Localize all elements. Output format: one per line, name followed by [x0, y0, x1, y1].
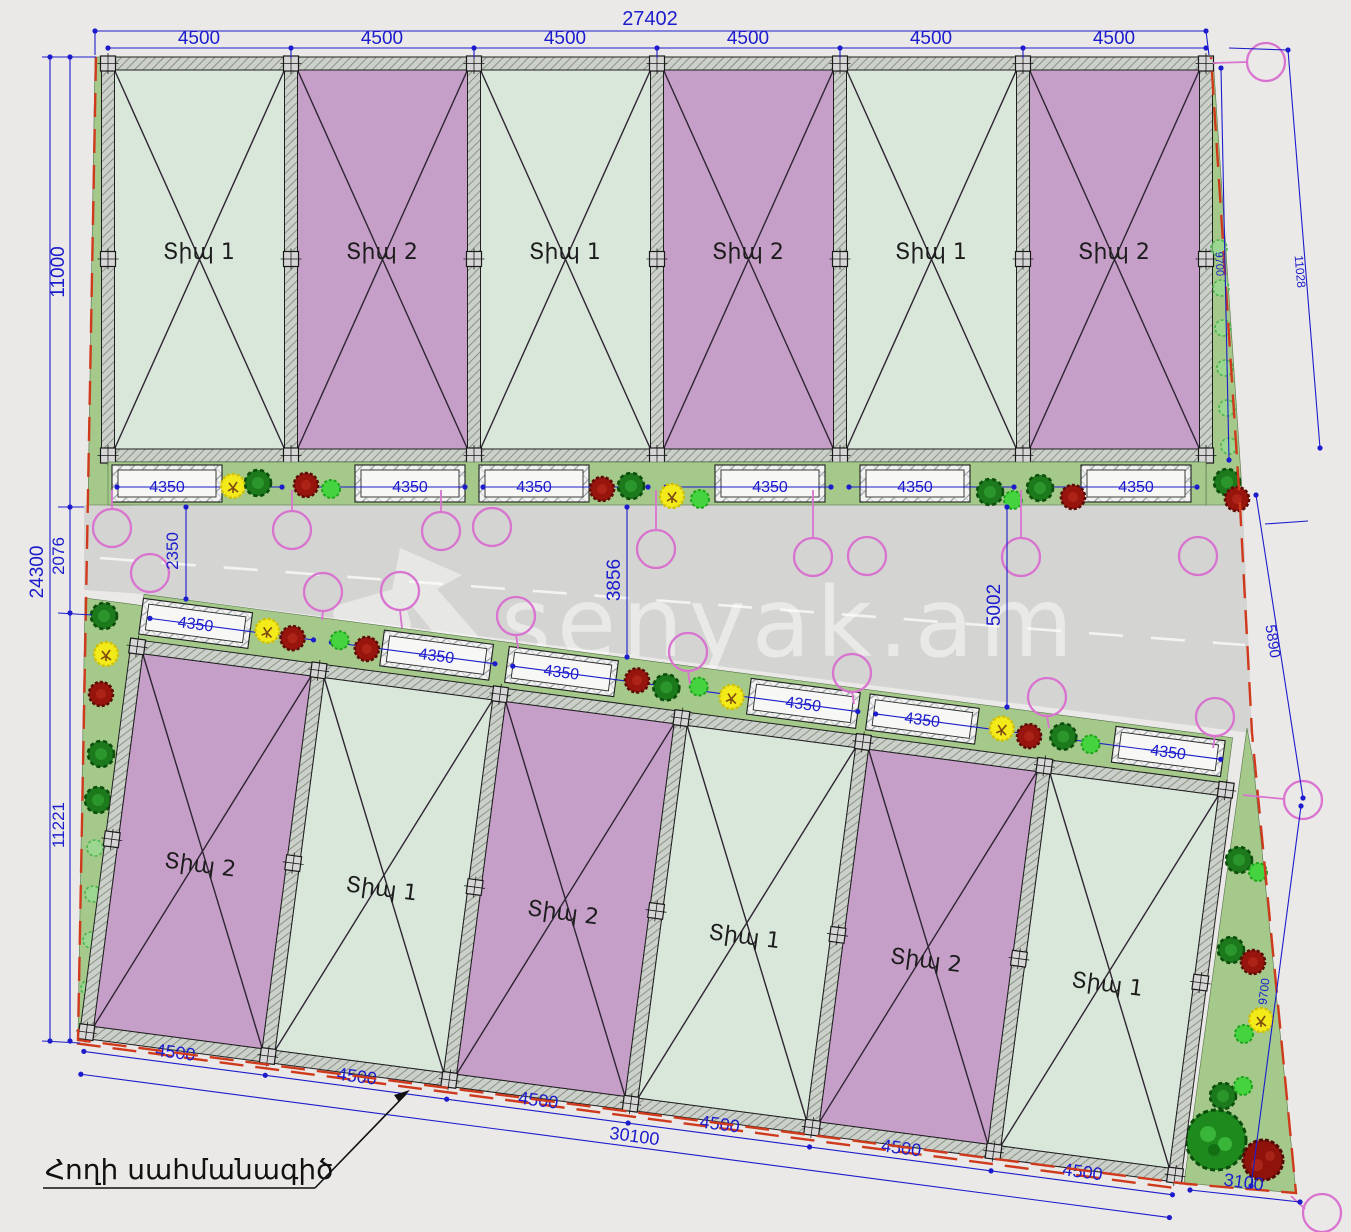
dimension-label: 24300 [27, 546, 48, 599]
plot: Տիպ 1 [481, 70, 651, 449]
dimension-label: 5002 [984, 584, 1005, 626]
dimension-label: 2350 [163, 532, 182, 570]
plot-label: Տիպ 2 [1078, 240, 1150, 265]
tree-icon [1061, 485, 1085, 509]
dimension-label: 4500 [544, 28, 586, 49]
dimension-label: 4500 [910, 28, 952, 49]
parking-dimension-label: 4350 [752, 479, 788, 496]
flower-icon [221, 474, 245, 498]
flower-icon [660, 484, 684, 508]
dimension-label: 4500 [178, 28, 220, 49]
plot: Տիպ 1 [847, 70, 1017, 449]
dimension-label: 11028 [1292, 255, 1309, 289]
dimension-label: 4500 [727, 28, 769, 49]
dimension-label: 2076 [49, 537, 68, 575]
tree-icon [691, 490, 709, 508]
dimension-label: 11000 [48, 246, 69, 297]
dimension-label: 4500 [361, 28, 403, 49]
dimension-label: 27402 [622, 8, 678, 30]
plot-label: Տիպ 1 [529, 240, 601, 265]
parking-dimension-label: 4350 [1118, 479, 1154, 496]
dimension-label: 11221 [49, 802, 68, 848]
top-plot-row: Տիպ 1 Տիպ 2 Տիպ 1 Տիպ 2 Տիպ 1 Տիպ 2 [98, 53, 1217, 466]
plot: Տիպ 2 [298, 70, 468, 449]
tree-icon [618, 473, 644, 499]
parking-dimension-label: 4350 [392, 479, 428, 496]
site-plan-drawing: senyak.am Տիպ 1 Տիպ 2 Տիպ 1 Տիպ 2 Տիպ 1 … [0, 0, 1351, 1232]
dimension-label: 4500 [1093, 28, 1135, 49]
tree-icon [590, 477, 614, 501]
plot-label: Տիպ 1 [895, 240, 967, 265]
plot: Տիպ 2 [664, 70, 834, 449]
plot: Տիպ 2 [1030, 70, 1200, 449]
site-plan-sheet: senyak.am Տիպ 1 Տիպ 2 Տիպ 1 Տիպ 2 Տիպ 1 … [0, 0, 1351, 1232]
tree-icon [1027, 475, 1053, 501]
parking-dimension-label: 4350 [149, 479, 185, 496]
plot-label: Տիպ 1 [163, 240, 235, 265]
tree-icon [977, 479, 1003, 505]
parking-dimension-label: 4350 [516, 479, 552, 496]
dimension-label: 9700 [1213, 251, 1226, 276]
tree-icon [1225, 487, 1249, 511]
parking-dimension-label: 4350 [897, 479, 933, 496]
tree-icon [245, 470, 271, 496]
tree-icon [322, 480, 340, 498]
tree-icon [294, 473, 318, 497]
top-parking-strip: 4350 4350 4350 4350 4350 4350 [108, 462, 1206, 509]
plot-label: Տիպ 2 [712, 240, 784, 265]
plot-label: Տիպ 2 [346, 240, 418, 265]
boundary-label: Հողի սահմանագիծ [45, 1153, 334, 1186]
dimension-label: 3856 [604, 559, 625, 601]
plot: Տիպ 1 [115, 70, 285, 449]
